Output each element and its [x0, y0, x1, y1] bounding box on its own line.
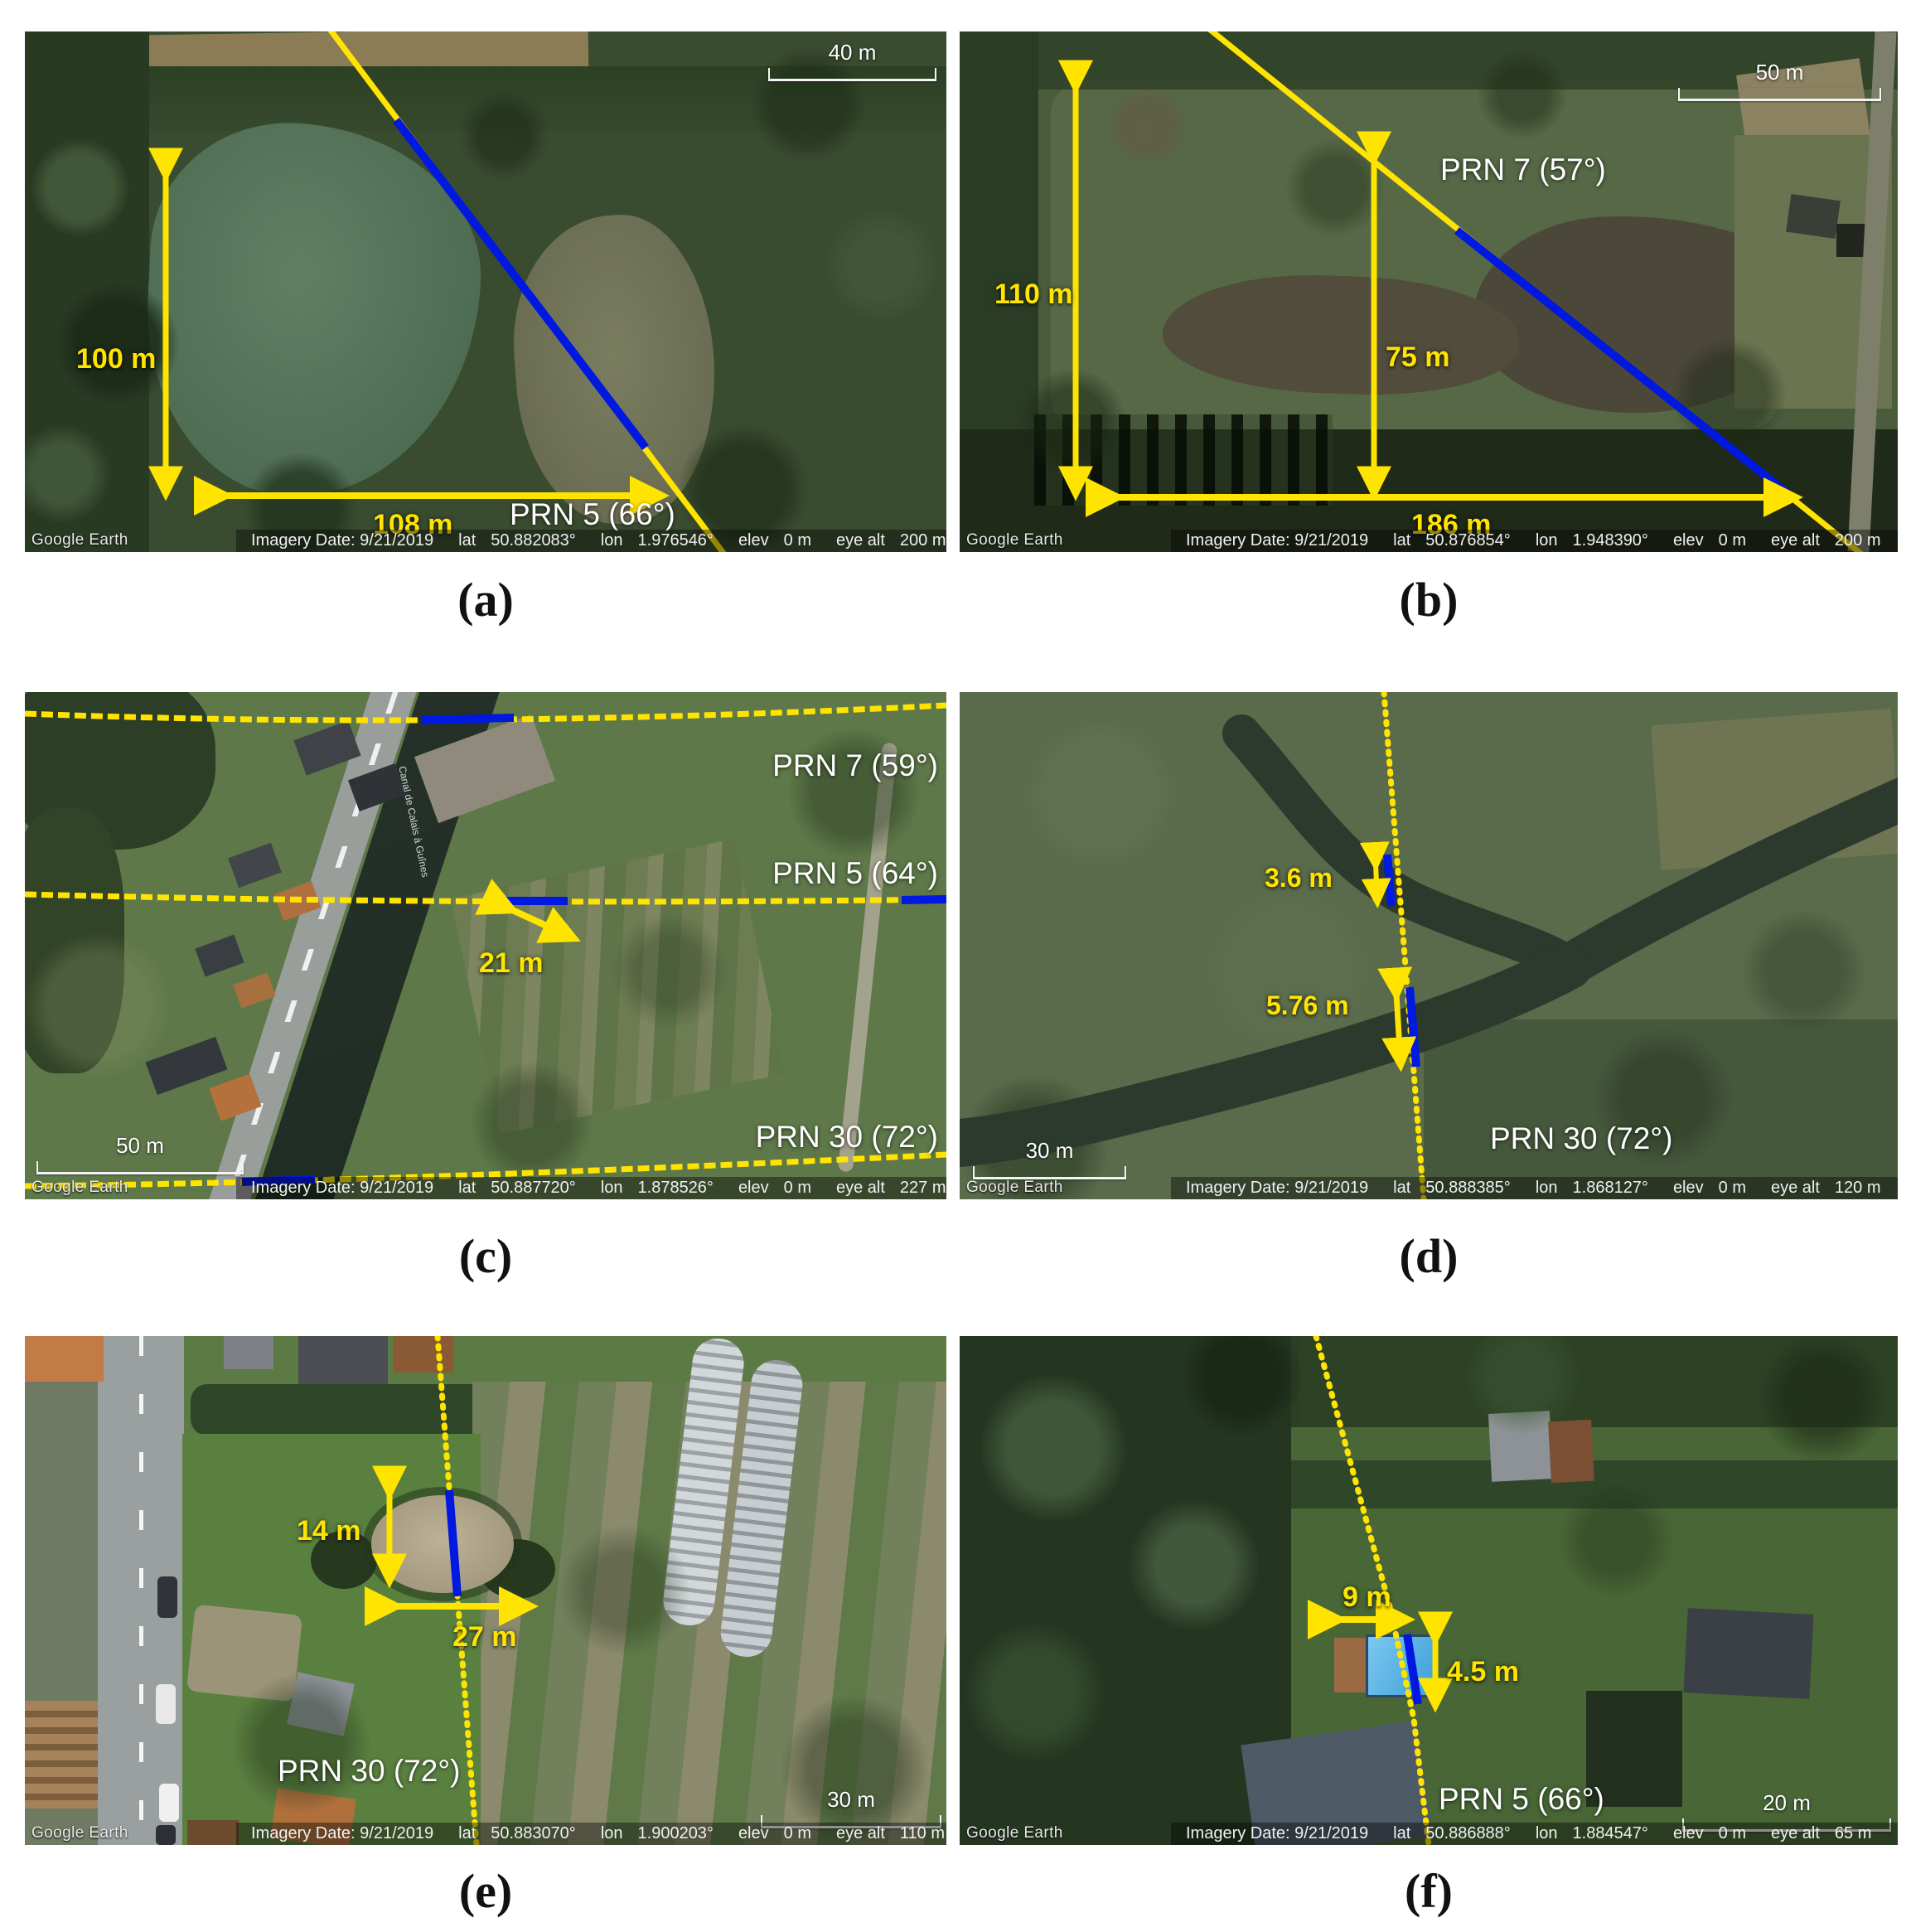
lat-label: lat [458, 1824, 476, 1843]
status-bar: Imagery Date: 9/21/2019 lat 50.887720° l… [236, 1177, 946, 1199]
status-bar: Imagery Date: 9/21/2019 lat 50.888385° l… [1171, 1177, 1898, 1199]
lon-value: 1.868127° [1573, 1179, 1648, 1198]
river-branch-shape [1569, 798, 1898, 966]
eye-alt-value: 200 m [1835, 531, 1881, 550]
lat-label: lat [458, 1179, 476, 1198]
scale-bar: 40 m [768, 40, 936, 81]
prn-label: PRN 7 (59°) [772, 748, 938, 783]
dimension-arrow-vertical [1396, 994, 1401, 1063]
measurement-label: 100 m [76, 345, 156, 373]
satellite-panel-d: 3.6 m 5.76 m PRN 30 (72°) 30 m Imagery D… [960, 692, 1898, 1199]
scale-bar-rule [1678, 88, 1881, 101]
elev-label: elev [1673, 531, 1704, 550]
elev-value: 0 m [1719, 1824, 1746, 1843]
status-bar: Imagery Date: 9/21/2019 lat 50.882083° l… [236, 530, 946, 552]
lon-label: lon [1536, 1824, 1558, 1843]
scale-bar-label: 30 m [761, 1787, 941, 1813]
panel-caption-a: (a) [25, 572, 946, 627]
scale-bar-label: 20 m [1682, 1790, 1891, 1816]
panel-caption-b: (b) [960, 572, 1898, 627]
status-bar: Imagery Date: 9/21/2019 lat 50.876854° l… [1171, 530, 1898, 552]
elev-label: elev [738, 1824, 769, 1843]
scale-bar: 30 m [973, 1138, 1126, 1179]
prn-label: PRN 30 (72°) [1490, 1121, 1672, 1156]
imagery-date: Imagery Date: 9/21/2019 [251, 1824, 433, 1843]
eye-alt-label: eye alt [836, 531, 885, 550]
satellite-panel-e: 14 m 27 m PRN 30 (72°) 30 m Imagery Date… [25, 1336, 946, 1845]
google-earth-watermark: Google Earth [31, 1824, 128, 1842]
elev-label: elev [738, 1179, 769, 1198]
elev-value: 0 m [1719, 1179, 1746, 1198]
lon-value: 1.976546° [638, 531, 714, 550]
scale-bar-label: 30 m [973, 1138, 1126, 1164]
prn-label: PRN 5 (66°) [1439, 1782, 1604, 1817]
lat-value: 50.883070° [491, 1824, 576, 1843]
eye-alt-value: 200 m [900, 531, 946, 550]
measurement-overlay [960, 1336, 1898, 1845]
elev-value: 0 m [784, 531, 811, 550]
lat-value: 50.887720° [491, 1179, 576, 1198]
measured-segment [1457, 230, 1792, 497]
elev-label: elev [1673, 1824, 1704, 1843]
lat-label: lat [1393, 531, 1410, 550]
scale-bar-label: 50 m [1678, 60, 1881, 85]
measured-segment [902, 899, 946, 900]
dimension-arrow-small [1376, 864, 1377, 901]
imagery-date: Imagery Date: 9/21/2019 [251, 531, 433, 550]
prn-label: PRN 30 (72°) [756, 1120, 938, 1155]
imagery-date: Imagery Date: 9/21/2019 [251, 1179, 433, 1198]
gps-track-line [1384, 692, 1424, 1199]
lat-value: 50.876854° [1425, 531, 1511, 550]
measurement-overlay [25, 31, 946, 552]
eye-alt-label: eye alt [836, 1179, 885, 1198]
imagery-date: Imagery Date: 9/21/2019 [1186, 1179, 1368, 1198]
scale-bar-label: 40 m [768, 40, 936, 65]
eye-alt-label: eye alt [1771, 1824, 1820, 1843]
measurement-label: 14 m [297, 1517, 361, 1545]
measurement-label: 21 m [479, 949, 544, 977]
lat-value: 50.882083° [491, 531, 576, 550]
google-earth-watermark: Google Earth [966, 1179, 1063, 1197]
eye-alt-value: 227 m [900, 1179, 946, 1198]
lon-value: 1.884547° [1573, 1824, 1648, 1843]
panel-caption-c: (c) [25, 1228, 946, 1284]
lon-label: lon [1536, 531, 1558, 550]
lon-label: lon [601, 1179, 623, 1198]
prn-label: PRN 5 (64°) [772, 856, 938, 891]
prn-label: PRN 7 (57°) [1440, 153, 1606, 187]
satellite-panel-b: 110 m 75 m 186 m PRN 7 (57°) 50 m Imager… [960, 31, 1898, 552]
elev-label: elev [738, 531, 769, 550]
google-earth-watermark: Google Earth [966, 1824, 1063, 1842]
google-earth-watermark: Google Earth [966, 531, 1063, 550]
panel-caption-e: (e) [25, 1863, 946, 1919]
imagery-date: Imagery Date: 9/21/2019 [1186, 531, 1368, 550]
measurement-label: 4.5 m [1447, 1658, 1519, 1686]
lon-value: 1.948390° [1573, 531, 1648, 550]
scale-bar: 50 m [1678, 60, 1881, 101]
lon-label: lon [601, 531, 623, 550]
gps-track-line [25, 894, 946, 902]
scale-bar-rule [973, 1166, 1126, 1179]
scale-bar: 50 m [36, 1133, 244, 1174]
eye-alt-label: eye alt [1771, 531, 1820, 550]
lat-label: lat [1393, 1179, 1410, 1198]
panel-caption-f: (f) [960, 1863, 1898, 1919]
status-bar: Imagery Date: 9/21/2019 lat 50.886888° l… [1171, 1823, 1898, 1845]
eye-alt-label: eye alt [836, 1824, 885, 1843]
measurement-overlay [960, 692, 1898, 1199]
measurement-label: 5.76 m [1266, 992, 1349, 1019]
measured-segment [396, 120, 646, 448]
measurement-label: 75 m [1386, 343, 1450, 371]
imagery-date: Imagery Date: 9/21/2019 [1186, 1824, 1368, 1843]
status-bar: Imagery Date: 9/21/2019 lat 50.883070° l… [236, 1823, 946, 1845]
elev-value: 0 m [784, 1179, 811, 1198]
river-shape [960, 966, 1569, 1144]
measurement-overlay [960, 31, 1898, 552]
eye-alt-value: 65 m [1835, 1824, 1871, 1843]
google-earth-watermark: Google Earth [31, 1179, 128, 1197]
prn-label: PRN 5 (66°) [510, 497, 675, 532]
measurement-label: 110 m [994, 280, 1073, 308]
scale-bar-label: 50 m [36, 1133, 244, 1159]
measurement-label: 9 m [1343, 1583, 1391, 1611]
measurement-label: 3.6 m [1265, 864, 1333, 891]
lat-label: lat [458, 531, 476, 550]
scale-bar-rule [36, 1161, 244, 1174]
lon-label: lon [601, 1824, 623, 1843]
google-earth-watermark: Google Earth [31, 531, 128, 550]
dimension-arrow-diagonal [510, 909, 572, 937]
lon-label: lon [1536, 1179, 1558, 1198]
elev-label: elev [1673, 1179, 1704, 1198]
elev-value: 0 m [1719, 531, 1746, 550]
lat-value: 50.888385° [1425, 1179, 1511, 1198]
measurement-label: 27 m [452, 1623, 517, 1651]
eye-alt-value: 110 m [900, 1824, 945, 1843]
satellite-panel-c: Canal de Calais à Guînes 21 m PRN 7 (59°… [25, 692, 946, 1199]
measurement-overlay [25, 1336, 946, 1845]
measured-segment [449, 1490, 457, 1596]
measured-segment [1387, 855, 1391, 906]
lat-label: lat [1393, 1824, 1410, 1843]
lat-value: 50.886888° [1425, 1824, 1511, 1843]
satellite-panel-a: 100 m 108 m PRN 5 (66°) 40 m Imagery Dat… [25, 31, 946, 552]
elev-value: 0 m [784, 1824, 811, 1843]
satellite-panel-f: 9 m 4.5 m PRN 5 (66°) 20 m Imagery Date:… [960, 1336, 1898, 1845]
prn-label: PRN 30 (72°) [278, 1754, 460, 1789]
scale-bar-rule [768, 68, 936, 81]
panel-caption-d: (d) [960, 1228, 1898, 1284]
lon-value: 1.878526° [638, 1179, 714, 1198]
measured-segment [421, 718, 514, 720]
lon-value: 1.900203° [638, 1824, 714, 1843]
eye-alt-value: 120 m [1835, 1179, 1881, 1198]
eye-alt-label: eye alt [1771, 1179, 1820, 1198]
